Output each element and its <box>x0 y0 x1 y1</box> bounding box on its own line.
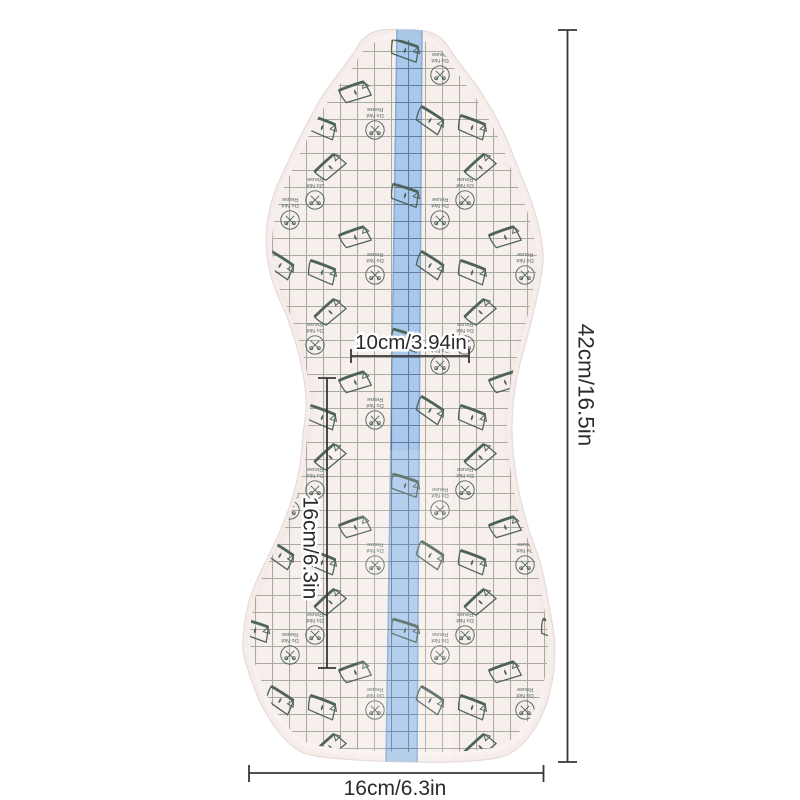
svg-text:16cm/6.3in: 16cm/6.3in <box>299 497 322 600</box>
svg-text:42cm/16.5in: 42cm/16.5in <box>574 324 599 447</box>
svg-text:16cm/6.3in: 16cm/6.3in <box>344 777 447 800</box>
svg-text:10cm/3.94in: 10cm/3.94in <box>355 331 467 354</box>
